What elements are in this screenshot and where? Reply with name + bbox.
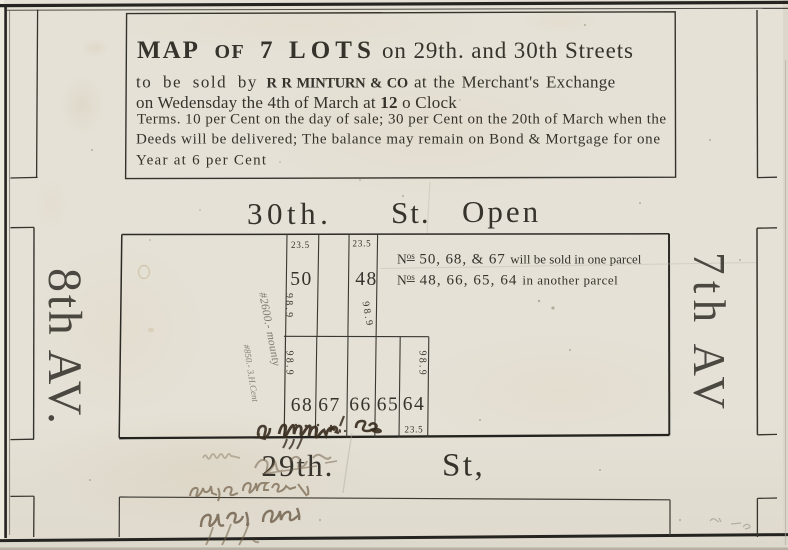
svg-text:St.: St. <box>391 195 431 230</box>
svg-text:23.5: 23.5 <box>353 239 372 249</box>
svg-text:Open: Open <box>462 194 541 229</box>
svg-text:68: 68 <box>291 395 314 416</box>
svg-text:to be sold by: to be sold by <box>136 73 258 92</box>
svg-text:98.9: 98.9 <box>284 351 295 377</box>
svg-text:65: 65 <box>377 394 400 415</box>
svg-text:98.9: 98.9 <box>417 351 428 377</box>
svg-text:48: 48 <box>355 269 378 290</box>
svg-text:Nos 48, 66, 65, 64 in another: Nos 48, 66, 65, 64 in another parcel <box>397 272 618 289</box>
svg-text:St,: St, <box>442 448 485 484</box>
svg-text:Terms. 10 per Cent on the day: Terms. 10 per Cent on the day of sale; 3… <box>137 112 666 128</box>
svg-text:Year at 6 per Cent: Year at 6 per Cent <box>136 153 267 169</box>
svg-text:8th AV.: 8th AV. <box>38 268 91 424</box>
svg-text:on Wedensday the 4th of March: on Wedensday the 4th of March at 12 o Cl… <box>136 93 457 112</box>
svg-text:R R MINTURN & CO: R R MINTURN & CO <box>267 76 408 92</box>
svg-text:23.5: 23.5 <box>405 425 424 435</box>
svg-text:on 29th. and 30th Streets: on 29th. and 30th Streets <box>382 38 634 63</box>
svg-text:23.5: 23.5 <box>291 240 310 250</box>
svg-text:30th.: 30th. <box>247 196 332 231</box>
svg-text:at the Merchant's Exchange: at the Merchant's Exchange <box>414 73 615 92</box>
svg-text:50: 50 <box>290 269 313 290</box>
svg-text:66: 66 <box>349 395 372 416</box>
svg-text:Deeds will be delivered; The b: Deeds will be delivered; The balance may… <box>136 132 660 148</box>
svg-text:7 LOTS: 7 LOTS <box>260 37 376 64</box>
svg-text:67: 67 <box>318 395 341 416</box>
svg-text:98.9: 98.9 <box>283 293 294 319</box>
svg-text:64: 64 <box>403 394 426 415</box>
svg-text:MAP: MAP <box>137 37 200 64</box>
svg-text:OF: OF <box>215 41 246 63</box>
